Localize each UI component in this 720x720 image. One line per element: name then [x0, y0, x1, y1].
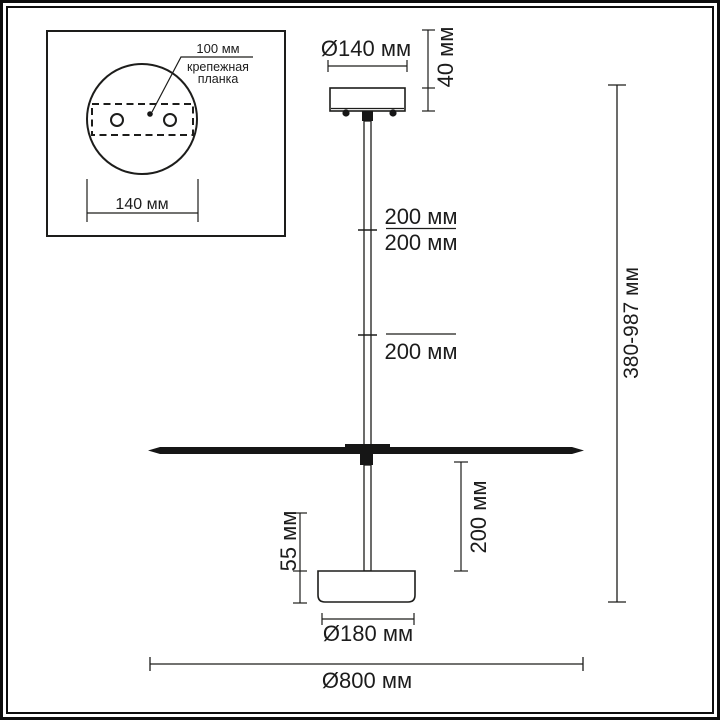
canopy-screw-left — [342, 109, 349, 116]
rod-top-connector — [362, 111, 373, 121]
canopy-screw-right — [389, 109, 396, 116]
base-height-label: 55 мм — [276, 511, 301, 572]
overall-height-label: 380-987 мм — [620, 267, 643, 379]
dimension-drawing-canvas: 100 мм крепежная планка 140 мм Ø140 мм 4… — [0, 0, 720, 720]
bracket-label-line2: планка — [198, 72, 239, 86]
disc-hub-block — [360, 454, 373, 465]
shade-to-base-drop-label: 200 мм — [466, 480, 491, 553]
lamp-technical-drawing: 100 мм крепежная планка 140 мм Ø140 мм 4… — [0, 0, 720, 720]
rod-lower-section — [364, 465, 371, 571]
rod-segment-2-label: 200 мм — [384, 230, 457, 255]
canopy-diameter-label: Ø140 мм — [321, 36, 411, 61]
rod-segment-1-label: 200 мм — [384, 204, 457, 229]
bracket-center-point-dot — [147, 111, 153, 117]
shade-diameter-label: Ø800 мм — [322, 668, 412, 693]
rod-upper-section — [364, 121, 371, 447]
hole-spacing-label: 100 мм — [196, 41, 239, 56]
canopy-diameter-dimension — [328, 60, 407, 72]
inset-canopy-diameter-label: 140 мм — [115, 196, 168, 213]
canopy-height-label: 40 мм — [433, 27, 458, 88]
base-cylinder — [318, 571, 415, 602]
drawing-lines — [47, 30, 626, 671]
rod-segment-3-label: 200 мм — [384, 339, 457, 364]
ceiling-canopy — [330, 88, 405, 111]
disc-mount-plate — [345, 444, 390, 449]
base-diameter-label: Ø180 мм — [323, 621, 413, 646]
